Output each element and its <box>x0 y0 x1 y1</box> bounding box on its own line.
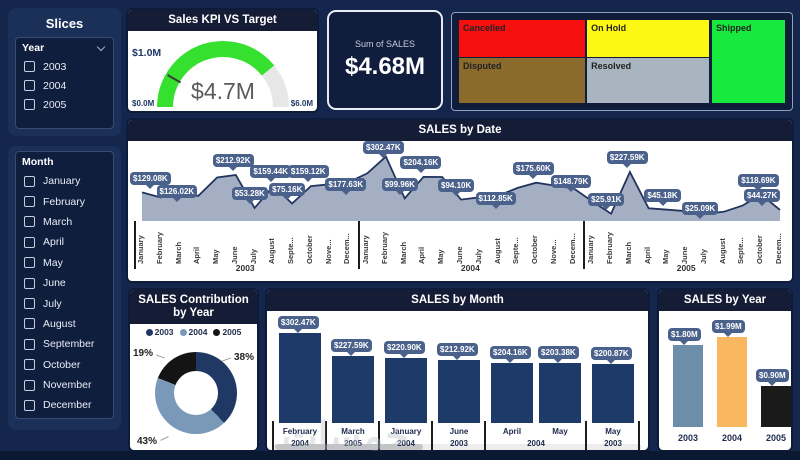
checkbox-icon[interactable] <box>24 216 35 227</box>
bar-year-label: 2003 <box>592 439 634 448</box>
slicer-item-month-september[interactable]: September <box>22 334 107 354</box>
x-axis-tick: January <box>587 224 595 264</box>
bar-month-label: June <box>432 427 486 436</box>
bar-value-callout: $212.92K <box>437 343 478 356</box>
slicer-item-month-december[interactable]: December <box>22 395 107 415</box>
data-label-callout: $126.02K <box>157 185 198 198</box>
legend-label: 2005 <box>222 327 241 337</box>
slicer-option-label: December <box>43 399 91 411</box>
year-group-label: 2003 <box>236 263 255 273</box>
slicer-option-label: March <box>43 216 72 228</box>
leader-line <box>160 437 169 442</box>
data-label-callout: $112.85K <box>476 192 516 205</box>
year-separator <box>358 221 360 269</box>
bar-month-label: May <box>586 427 640 436</box>
slicer-option-label: 2005 <box>43 99 66 111</box>
checkbox-icon[interactable] <box>24 237 35 248</box>
leader-line <box>222 358 231 362</box>
month-slicer: Month JanuaryFebruaryMarchAprilMayJuneJu… <box>15 151 114 419</box>
checkbox-icon[interactable] <box>24 278 35 289</box>
year-bar-2004[interactable] <box>717 337 747 427</box>
x-axis-tick: June <box>231 224 239 264</box>
bar-may-2003[interactable] <box>592 364 634 424</box>
slicer-item-month-october[interactable]: October <box>22 355 107 375</box>
x-axis-tick: January <box>137 224 145 264</box>
x-axis-tick: May <box>212 224 220 264</box>
x-axis-tick: August <box>494 224 502 264</box>
slicer-option-label: January <box>43 175 80 187</box>
x-axis-tick: October <box>306 224 314 264</box>
x-axis-tick: Septe... <box>287 224 295 264</box>
x-axis-tick: Nove... <box>325 224 333 264</box>
slicer-option-label: September <box>43 338 94 350</box>
slicer-item-year-2005[interactable]: 2005 <box>22 95 107 114</box>
gauge-max-label: $6.0M <box>291 99 313 108</box>
data-label-callout: $53.28K <box>232 187 268 200</box>
sales-by-date-title: SALES by Date <box>128 120 792 141</box>
data-label-callout: $159.44K <box>250 165 291 178</box>
bar-value-callout: $203.38K <box>538 346 579 359</box>
data-label-callout: $227.59K <box>607 151 648 164</box>
x-axis-tick: April <box>193 224 201 264</box>
slicer-item-month-may[interactable]: May <box>22 253 107 273</box>
slicer-item-month-february[interactable]: February <box>22 191 107 211</box>
sales-by-year-chart[interactable]: $1.80M2003$1.99M2004$0.90M2005 <box>659 311 791 452</box>
bar-may-2004[interactable] <box>539 363 581 423</box>
slicer-option-label: November <box>43 379 91 391</box>
category-separator <box>272 421 274 452</box>
sales-by-year-title: SALES by Year <box>659 290 791 311</box>
slicer-item-month-july[interactable]: July <box>22 293 107 313</box>
checkbox-icon[interactable] <box>24 339 35 350</box>
x-axis-tick: October <box>531 224 539 264</box>
dashboard-canvas: Slices Year 200320042005 Month JanuaryFe… <box>0 0 800 460</box>
slicer-panel-year: Slices Year 200320042005 <box>8 8 121 136</box>
gauge[interactable]: $4.7M $1.0M $0.0M $6.0M <box>128 31 317 110</box>
x-axis-tick: August <box>719 224 727 264</box>
checkbox-icon[interactable] <box>24 176 35 187</box>
category-separator <box>431 421 433 452</box>
legend-item-2003[interactable]: 2003 <box>146 327 174 337</box>
slicer-item-month-march[interactable]: March <box>22 212 107 232</box>
donut-hole <box>174 371 218 415</box>
slicer-item-month-june[interactable]: June <box>22 273 107 293</box>
bar-february-2004[interactable] <box>279 333 321 423</box>
gauge-title: Sales KPI VS Target <box>128 10 317 31</box>
donut-legend: 200320042005 <box>130 327 257 337</box>
bar-value-callout: $227.59K <box>331 339 372 352</box>
data-label-callout: $177.63K <box>325 178 366 191</box>
year-bar-label: 2003 <box>668 433 708 443</box>
bar-value-callout: $200.87K <box>591 347 632 360</box>
year-group-label: 2005 <box>677 263 696 273</box>
legend-item-2004[interactable]: 2004 <box>180 327 208 337</box>
data-label-callout: $25.91K <box>588 193 624 206</box>
x-axis-tick: March <box>625 224 633 264</box>
legend-dot <box>146 329 153 336</box>
donut-label-2003: 38% <box>234 352 254 363</box>
slicer-item-year-2003[interactable]: 2003 <box>22 57 107 76</box>
donut-chart[interactable] <box>155 352 237 434</box>
category-separator <box>484 421 486 452</box>
x-axis-tick: February <box>156 224 164 264</box>
contribution-title: SALES Contribution by Year <box>130 290 257 324</box>
x-axis-tick: April <box>644 224 652 264</box>
checkbox-icon[interactable] <box>24 318 35 329</box>
data-label-callout: $204.16K <box>400 156 441 169</box>
year-bar-callout: $1.80M <box>668 328 701 341</box>
sales-by-date-chart[interactable]: $129.08K$126.02K$212.92K$53.28K$159.44K$… <box>128 141 792 280</box>
slicer-item-month-january[interactable]: January <box>22 171 107 191</box>
x-axis-tick: June <box>456 224 464 264</box>
slicer-option-label: July <box>43 298 62 310</box>
slicer-item-month-april[interactable]: April <box>22 232 107 252</box>
slicer-option-label: 2003 <box>43 61 66 73</box>
month-slicer-label: Month <box>22 156 54 168</box>
slicer-panel-month: Month JanuaryFebruaryMarchAprilMayJuneJu… <box>8 146 121 430</box>
year-separator <box>134 221 136 269</box>
slicer-option-label: October <box>43 359 80 371</box>
sum-of-sales-card[interactable]: Sum of SALES $4.68M <box>327 10 443 110</box>
donut-label-2005: 19% <box>133 348 153 359</box>
bar-month-label: April <box>485 427 539 436</box>
x-axis-tick: March <box>400 224 408 264</box>
checkbox-icon[interactable] <box>24 400 35 411</box>
year-bar-callout: $0.90M <box>756 369 789 382</box>
x-axis-tick: Septe... <box>737 224 745 264</box>
sum-card-value: $4.68M <box>345 53 425 81</box>
treemap-block-resolved[interactable]: Resolved <box>587 58 709 103</box>
x-axis-tick: August <box>268 224 276 264</box>
sales-by-date-card: SALES by Date $129.08K$126.02K$212.92K$5… <box>126 118 794 283</box>
year-bar-2005[interactable] <box>761 386 791 427</box>
x-axis-tick: April <box>418 224 426 264</box>
data-label-callout: $44.27K <box>744 189 780 202</box>
slicer-option-label: May <box>43 257 63 269</box>
year-slicer: Year 200320042005 <box>15 37 114 129</box>
data-label-callout: $148.79K <box>551 175 592 188</box>
bar-month-label: May <box>533 427 587 436</box>
slicer-option-label: February <box>43 196 85 208</box>
data-label-callout: $99.96K <box>382 178 418 191</box>
leader-line <box>156 355 165 359</box>
bar-june-2003[interactable] <box>438 360 480 423</box>
year-slicer-label: Year <box>22 42 44 54</box>
legend-label: 2003 <box>155 327 174 337</box>
checkbox-icon[interactable] <box>24 99 35 110</box>
data-label-callout: $25.09K <box>682 202 718 215</box>
data-label-callout: $159.12K <box>288 165 329 178</box>
year-bar-label: 2004 <box>712 433 752 443</box>
x-axis-tick: January <box>362 224 370 264</box>
slicer-item-month-august[interactable]: August <box>22 314 107 334</box>
x-axis-tick: Septe... <box>512 224 520 264</box>
slicer-option-label: April <box>43 236 64 248</box>
checkbox-icon[interactable] <box>24 80 35 91</box>
legend-dot <box>213 329 220 336</box>
treemap-block-disputed[interactable]: Disputed <box>459 58 585 103</box>
x-axis-tick: July <box>700 224 708 264</box>
bar-value-callout: $220.90K <box>384 341 425 354</box>
checkbox-icon[interactable] <box>24 298 35 309</box>
watermark: خمسات <box>282 414 409 459</box>
bar-value-callout: $204.16K <box>490 346 531 359</box>
gauge-target-label: $1.0M <box>132 47 161 59</box>
year-bar-callout: $1.99M <box>712 320 745 333</box>
x-axis-tick: Decem... <box>343 224 351 264</box>
category-separator <box>585 421 587 452</box>
legend-dot <box>180 329 187 336</box>
treemap-block-shipped[interactable]: Shipped <box>712 20 785 103</box>
treemap-block-cancelled[interactable]: Cancelled <box>459 20 585 57</box>
data-label-callout: $129.08K <box>130 172 171 185</box>
bar-april-2004[interactable] <box>491 363 533 424</box>
x-axis-tick: February <box>381 224 389 264</box>
x-axis-tick: July <box>250 224 258 264</box>
kpi-gauge-card: Sales KPI VS Target $4.7M $1.0M $0.0M $6… <box>126 8 319 113</box>
checkbox-icon[interactable] <box>24 196 35 207</box>
bar-value-callout: $302.47K <box>278 316 319 329</box>
bar-year-label: 2003 <box>438 439 480 448</box>
x-axis-tick: May <box>437 224 445 264</box>
data-label-callout: $118.69K <box>738 174 778 187</box>
x-axis-tick: June <box>681 224 689 264</box>
x-axis-tick: Decem... <box>775 224 783 264</box>
category-separator <box>638 421 640 452</box>
year-bar-2003[interactable] <box>673 345 703 427</box>
sales-by-month-title: SALES by Month <box>267 290 648 311</box>
x-axis-tick: May <box>662 224 670 264</box>
x-axis-tick: Decem... <box>569 224 577 264</box>
data-label-callout: $302.47K <box>363 141 404 154</box>
data-label-callout: $45.18K <box>644 189 680 202</box>
x-axis-tick: October <box>756 224 764 264</box>
contribution-card: SALES Contribution by Year 200320042005 … <box>128 288 259 452</box>
status-treemap: Cancelled On Hold Disputed Resolved Ship… <box>451 12 793 111</box>
x-axis-tick: February <box>606 224 614 264</box>
year-separator <box>583 221 585 269</box>
x-axis-tick: Nove... <box>550 224 558 264</box>
year-group-label: 2004 <box>461 263 480 273</box>
donut-label-2004: 43% <box>137 436 157 447</box>
year-bar-label: 2005 <box>756 433 793 443</box>
slicer-item-month-november[interactable]: November <box>22 375 107 395</box>
sales-by-year-card: SALES by Year $1.80M2003$1.99M2004$0.90M… <box>657 288 793 452</box>
checkbox-icon[interactable] <box>24 61 35 72</box>
x-axis-tick: March <box>175 224 183 264</box>
x-axis-tick: July <box>475 224 483 264</box>
checkbox-icon[interactable] <box>24 380 35 391</box>
slicer-option-label: June <box>43 277 66 289</box>
legend-item-2005[interactable]: 2005 <box>213 327 241 337</box>
treemap-block-on-hold[interactable]: On Hold <box>587 20 709 57</box>
slicer-option-label: August <box>43 318 76 330</box>
bar-year-label: 2004 <box>491 439 581 448</box>
sum-card-label: Sum of SALES <box>355 39 415 49</box>
data-label-callout: $175.60K <box>513 162 554 175</box>
slicer-option-label: 2004 <box>43 80 66 92</box>
slicer-item-year-2004[interactable]: 2004 <box>22 76 107 95</box>
data-label-callout: $94.10K <box>438 179 474 192</box>
data-label-callout: $75.16K <box>269 183 305 196</box>
sidebar-title: Slices <box>15 16 114 31</box>
legend-label: 2004 <box>189 327 208 337</box>
checkbox-icon[interactable] <box>24 257 35 268</box>
gauge-value: $4.7M <box>157 78 289 105</box>
data-label-callout: $212.92K <box>213 154 254 167</box>
gauge-min-label: $0.0M <box>132 99 154 108</box>
checkbox-icon[interactable] <box>24 359 35 370</box>
chevron-down-icon[interactable] <box>97 42 105 50</box>
